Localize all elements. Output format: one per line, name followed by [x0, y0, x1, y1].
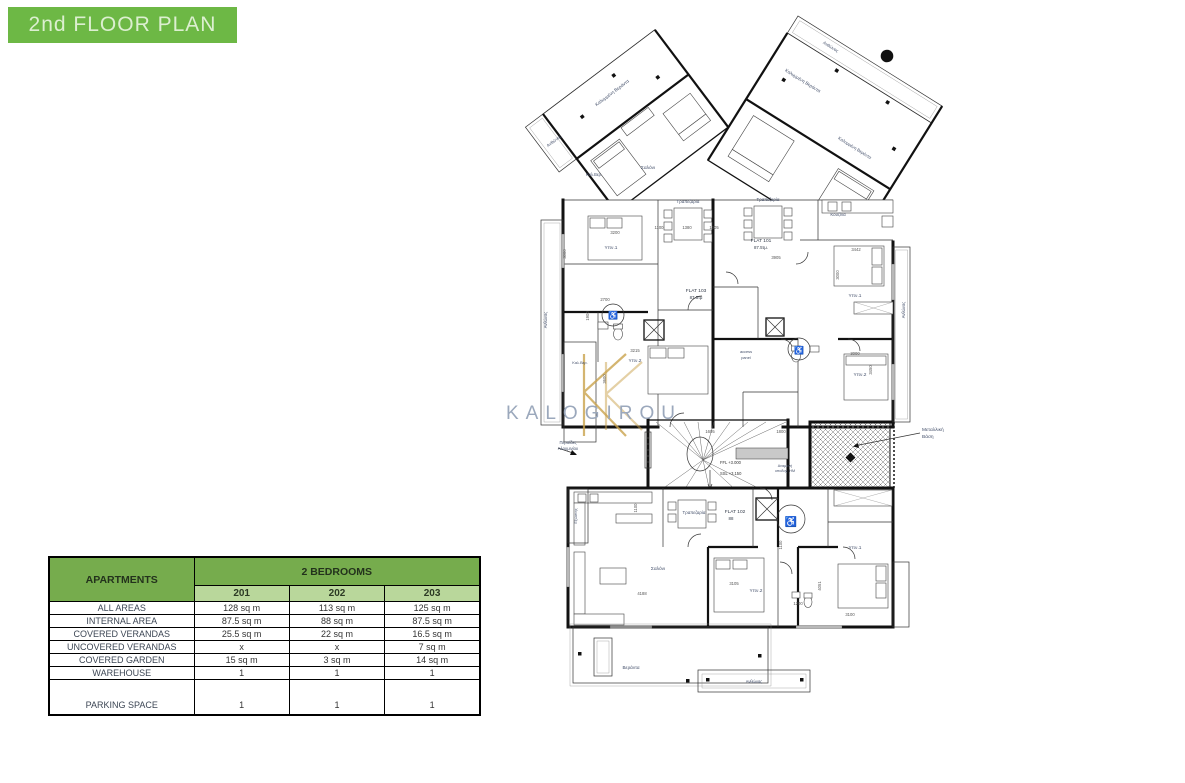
- dim-label: 3600: [602, 374, 607, 384]
- label-ffl: FFL +3.000: [720, 460, 742, 465]
- dim-label: 3200: [610, 230, 620, 235]
- row-value: 16.5 sq m: [385, 628, 480, 641]
- column-header-202: 202: [289, 586, 384, 602]
- dim-label: 3000: [850, 351, 860, 356]
- floor-plan-drawing: ΑνθώναςΚαλυμμένη ΒεράνταΚαλ.Βερ.ΣαλόνιΑν…: [498, 2, 978, 712]
- table-row: COVERED GARDEN15 sq m3 sq m14 sq m: [49, 654, 480, 667]
- dim-label: 1100: [633, 503, 638, 513]
- floor-plan-svg: ΑνθώναςΚαλυμμένη ΒεράνταΚαλ.Βερ.ΣαλόνιΑν…: [498, 2, 978, 712]
- row-value: 1: [385, 680, 480, 716]
- dim-label: 1800: [776, 429, 786, 434]
- dim-label: 1900: [585, 311, 590, 321]
- row-value: 1: [194, 667, 289, 680]
- label-flat-102-area: 88: [729, 516, 734, 521]
- apartments-header-cell: APARTMENTS: [49, 557, 194, 602]
- row-label: WAREHOUSE: [49, 667, 194, 680]
- table-row: PARKING SPACE111: [49, 680, 480, 716]
- row-value: 3 sq m: [289, 654, 384, 667]
- site-dot: [881, 50, 894, 63]
- dim-label: 1200: [793, 601, 803, 606]
- table-body: ALL AREAS128 sq m113 sq m125 sq mINTERNA…: [49, 602, 480, 716]
- label-anthonas-left: Ανθώνας: [546, 134, 563, 148]
- label-bed1-flat103: Υπν.1: [605, 245, 618, 251]
- metal-base: [810, 422, 920, 488]
- dim-label: 3000: [835, 270, 840, 280]
- label-anamoni: Αναμονή: [778, 464, 792, 468]
- label-anthonas-top-right: Ανθώνας: [822, 40, 839, 53]
- row-value: 113 sq m: [289, 602, 384, 615]
- row-value: 1: [289, 680, 384, 716]
- label-flat-103-area: 87.5τμ: [690, 295, 703, 300]
- row-value: 87.5 sq m: [385, 615, 480, 628]
- label-louvers-2: Αλουμινίου: [558, 446, 579, 451]
- dim-label: 3450: [868, 365, 873, 375]
- table-row: ALL AREAS128 sq m113 sq m125 sq m: [49, 602, 480, 615]
- label-bed2-flat103: Υπν.2: [629, 358, 642, 364]
- page-title: 2nd FLOOR PLAN: [8, 7, 237, 43]
- label-metal-base-1: Μεταλλική: [922, 426, 944, 433]
- row-value: 25.5 sq m: [194, 628, 289, 641]
- dim-label: 3215: [630, 348, 640, 353]
- row-value: 128 sq m: [194, 602, 289, 615]
- table-row: WAREHOUSE111: [49, 667, 480, 680]
- label-metal-base-2: Βάση: [922, 433, 934, 440]
- veranda-bottom: [570, 624, 810, 692]
- label-dining-3: Τραπεζαρία: [683, 510, 706, 515]
- label-bed1-flat101: Υπν.1: [849, 293, 862, 299]
- label-dining-2: Τραπεζαρία: [757, 197, 780, 202]
- row-label: INTERNAL AREA: [49, 615, 194, 628]
- label-flat-103: FLAT 103: [686, 288, 707, 294]
- label-bed1-flat102: Υπν.1: [849, 545, 862, 551]
- label-bed2-flat102: Υπν.2: [750, 588, 763, 594]
- label-flat-101: FLAT 101: [751, 238, 772, 244]
- label-kal-ver-1: Καλ.Βερ.: [586, 172, 602, 177]
- label-living-2: Σαλόνι: [651, 565, 665, 572]
- table-row: UNCOVERED VERANDASxx7 sq m: [49, 641, 480, 654]
- label-anthonas-west: Ανθώνας: [543, 312, 548, 329]
- row-label: PARKING SPACE: [49, 680, 194, 716]
- table-row: COVERED VERANDAS25.5 sq m22 sq m16.5 sq …: [49, 628, 480, 641]
- stairwell: [558, 420, 788, 494]
- row-value: x: [194, 641, 289, 654]
- bedrooms-header-cell: 2 BEDROOMS: [194, 557, 480, 586]
- dim-label: 4188: [637, 591, 647, 596]
- row-value: 88 sq m: [289, 615, 384, 628]
- column-header-201: 201: [194, 586, 289, 602]
- label-kitchen-1: Κουζίνα: [830, 212, 846, 217]
- table-header: APARTMENTS 2 BEDROOMS 201 202 203: [49, 557, 480, 602]
- row-value: 1: [385, 667, 480, 680]
- watermark-text: KALOGIROU: [506, 403, 682, 424]
- dim-label: 2700: [600, 297, 610, 302]
- row-value: 14 sq m: [385, 654, 480, 667]
- label-louvers-1: Περσίδες: [559, 440, 576, 445]
- row-value: 22 sq m: [289, 628, 384, 641]
- label-ssl: SSL +3.150: [720, 471, 742, 476]
- row-value: 7 sq m: [385, 641, 480, 654]
- label-panel: panel: [741, 355, 751, 360]
- label-living-1: Σαλόνι: [641, 164, 655, 171]
- label-covered-veranda-2: Καλυμμένη Βεράντα: [784, 67, 822, 94]
- label-access: access: [740, 349, 752, 354]
- apartments-table: APARTMENTS 2 BEDROOMS 201 202 203 ALL AR…: [48, 556, 481, 716]
- dim-label: 4051: [817, 581, 822, 591]
- wheelchair-icon: ♿: [608, 310, 618, 320]
- label-anthonas-bottom: Ανθώνας: [746, 679, 763, 684]
- label-covered-veranda-1: Καλυμμένη Βεράντα: [594, 77, 631, 107]
- label-kal-ver-2: Καλ.Βερ.: [572, 360, 587, 365]
- row-value: 15 sq m: [194, 654, 289, 667]
- row-label: ALL AREAS: [49, 602, 194, 615]
- row-value: 87.5 sq m: [194, 615, 289, 628]
- label-ypodoxi: υποδοχ. ΗΜ: [775, 469, 795, 473]
- label-flat-102: FLAT 102: [725, 509, 746, 515]
- row-value: 125 sq m: [385, 602, 480, 615]
- label-flat-101-area: 87.5τμ.: [754, 245, 768, 250]
- wheelchair-icon: ♿: [785, 515, 797, 528]
- dim-label: 1100: [654, 225, 664, 230]
- label-veranda-bottom: Βεράντα: [622, 664, 639, 670]
- wheelchair-icon: ♿: [794, 345, 804, 355]
- row-label: COVERED VERANDAS: [49, 628, 194, 641]
- row-value: 1: [194, 680, 289, 716]
- row-value: x: [289, 641, 384, 654]
- dim-label: 3000: [562, 249, 567, 259]
- dim-label: 1305: [709, 225, 719, 230]
- dim-label: 1605: [705, 429, 715, 434]
- dim-label: 3905: [771, 255, 781, 260]
- label-dining-1: Τραπεζαρία: [677, 199, 700, 204]
- row-value: 1: [289, 667, 384, 680]
- row-label: UNCOVERED VERANDAS: [49, 641, 194, 654]
- dim-label: 3442: [851, 247, 861, 252]
- table-row: INTERNAL AREA87.5 sq m88 sq m87.5 sq m: [49, 615, 480, 628]
- dim-label: 3105: [729, 581, 739, 586]
- dim-label: 1100: [778, 540, 783, 550]
- label-anthonas-east: Ανθώνας: [901, 302, 906, 319]
- column-header-203: 203: [385, 586, 480, 602]
- veranda-top-left: [525, 30, 728, 225]
- label-covered-veranda-3: Καλυμμένη Βεράντα: [837, 135, 873, 160]
- label-exostis: Εξώστης: [573, 508, 578, 523]
- row-label: COVERED GARDEN: [49, 654, 194, 667]
- dim-label: 1380: [682, 225, 692, 230]
- label-bed2-flat101: Υπν.2: [854, 372, 867, 378]
- dim-label: 3100: [845, 612, 855, 617]
